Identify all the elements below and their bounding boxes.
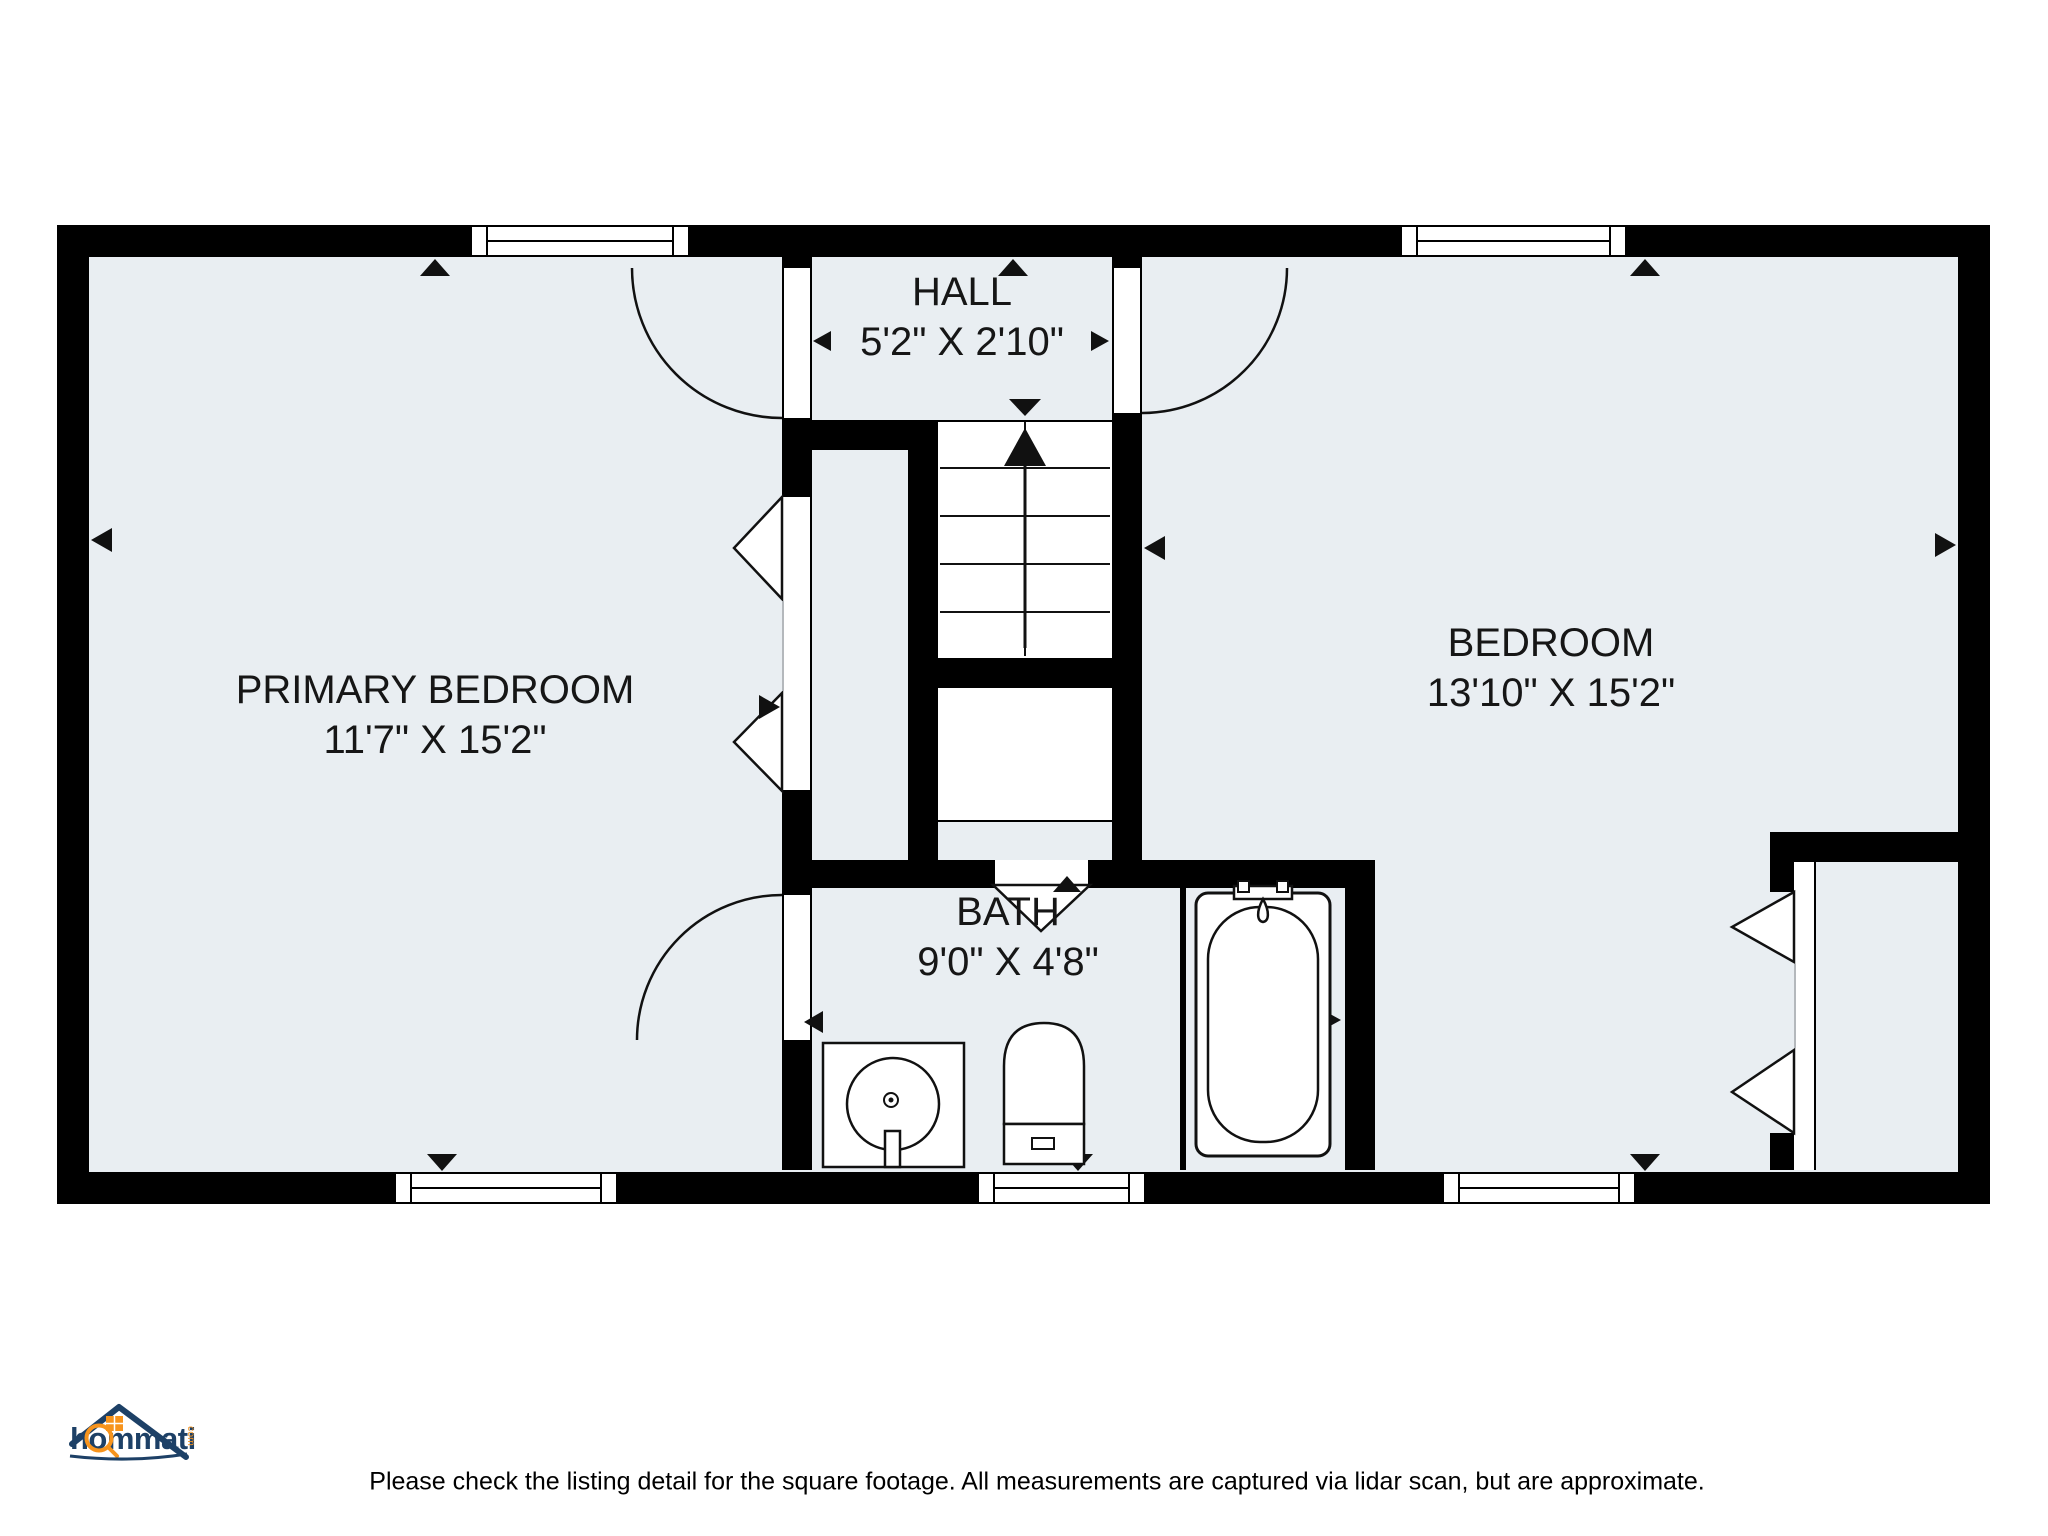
hall-label: HALL 5'2" X 2'10" <box>860 267 1064 367</box>
bedroom-name: BEDROOM <box>1427 618 1675 668</box>
door-hall-bedroom <box>1112 268 1142 413</box>
door-primary-bedroom-hall <box>782 268 812 418</box>
door-bath-entry <box>993 860 1090 888</box>
logo-tld-text: com <box>185 1426 197 1446</box>
closet-door-channel-middle <box>782 497 812 790</box>
wall-bedroom-closet-stub-top <box>1770 862 1794 892</box>
window-bottom-right <box>1442 1172 1636 1204</box>
bedroom-label: BEDROOM 13'10" X 15'2" <box>1427 618 1675 718</box>
wall-tub-partition <box>1180 888 1186 1170</box>
bedroom-dims: 13'10" X 15'2" <box>1427 668 1675 718</box>
bath-dims: 9'0" X 4'8" <box>917 937 1099 987</box>
bath-name: BATH <box>917 887 1099 937</box>
hall-dims: 5'2" X 2'10" <box>860 317 1064 367</box>
stair-landing <box>938 688 1112 822</box>
primary-bedroom-name: PRIMARY BEDROOM <box>236 665 635 715</box>
wall-bedroom-closet-stub-bottom <box>1770 1133 1794 1170</box>
logo-brand-text: hommati <box>70 1421 196 1456</box>
window-top-left <box>470 225 690 257</box>
window-top-right <box>1400 225 1627 257</box>
door-primary-bedroom-bath <box>782 895 812 1040</box>
floorplan-image: PRIMARY BEDROOM 11'7" X 15'2" HALL 5'2" … <box>0 0 2048 1536</box>
closet-door-channel-bedroom <box>1794 862 1816 1170</box>
window-bottom-left <box>394 1172 618 1204</box>
hommati-logo-graphic: hommati com <box>40 1380 300 1500</box>
wall-bedroom-closet-north <box>1770 832 1958 862</box>
bath-label: BATH 9'0" X 4'8" <box>917 887 1099 987</box>
wall-bath-east <box>1345 860 1375 1170</box>
hall-name: HALL <box>860 267 1064 317</box>
primary-bedroom-label: PRIMARY BEDROOM 11'7" X 15'2" <box>236 665 635 765</box>
primary-bedroom-dims: 11'7" X 15'2" <box>236 715 635 765</box>
window-bath <box>977 1172 1146 1204</box>
staircase <box>938 420 1112 658</box>
disclaimer-text: Please check the listing detail for the … <box>369 1468 1704 1497</box>
wall-closet-stairs <box>908 420 938 888</box>
wall-stairs-landing <box>908 658 1142 688</box>
